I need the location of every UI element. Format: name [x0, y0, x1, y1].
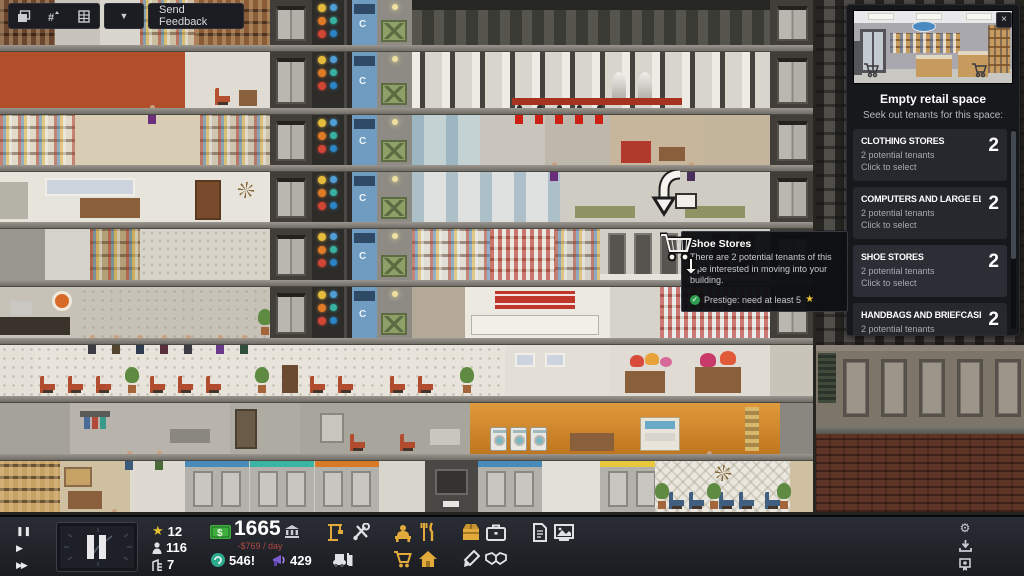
furniture-sprite [645, 421, 675, 429]
pipe [344, 172, 347, 222]
dumpster [381, 197, 407, 219]
furniture-sprite [630, 355, 644, 367]
room-bookstore[interactable] [200, 115, 270, 165]
utility-indicator-light [318, 82, 326, 90]
chair-sprite [669, 492, 684, 509]
corridor[interactable] [140, 229, 270, 280]
furniture-sprite [392, 176, 398, 182]
plant-sprite [777, 483, 791, 509]
furniture-sprite [645, 353, 659, 365]
furniture-sprite [815, 345, 1024, 351]
room-minimart[interactable] [490, 229, 555, 280]
utility-indicator-light [330, 145, 337, 152]
tenant-count: 2 [988, 251, 999, 273]
tenant-type-name: COMPUTERS AND LARGE ELECTRONICS [861, 194, 981, 204]
washing-machine [530, 427, 547, 451]
cash-icon: $ [210, 525, 231, 539]
tenant-detail: 2 potential tenantsClick to select [861, 208, 999, 231]
furniture-sprite [695, 367, 741, 393]
furniture-sprite [570, 433, 614, 451]
utility-indicator-light [318, 259, 326, 267]
utility-indicator-light [330, 30, 337, 37]
furniture-sprite [392, 56, 398, 62]
furniture-sprite [659, 147, 685, 161]
tenant-detail: 2 potential tenantsClick to select [861, 266, 999, 289]
preview-art [854, 41, 862, 75]
furniture-sprite [443, 501, 459, 507]
room[interactable] [542, 461, 600, 512]
furniture-sprite [100, 417, 106, 429]
pause-indicator [99, 535, 106, 559]
furniture-sprite [660, 357, 672, 367]
furniture-sprite [545, 353, 565, 367]
furniture-sprite [392, 4, 398, 10]
furniture-sprite [282, 365, 298, 393]
tenant-selection-panel: × Empty retail space Seek out tenants fo… [846, 4, 1020, 336]
plant-sprite [707, 483, 721, 509]
sprite-layer [615, 127, 705, 165]
furniture-sprite [239, 90, 257, 106]
tenant-type-name: HANDBAGS AND BRIEFCASES [861, 310, 981, 320]
room-storage[interactable] [90, 229, 140, 280]
furniture-sprite [745, 407, 759, 451]
utility-indicator-light [330, 246, 337, 253]
plant-sprite [655, 483, 669, 509]
furniture-sprite [815, 426, 1024, 434]
utility-indicator-light [318, 56, 326, 64]
furniture-sprite [0, 182, 28, 219]
furniture-sprite [354, 176, 375, 186]
svg-text:#: # [48, 12, 54, 23]
pause-indicator [87, 535, 94, 559]
furniture-sprite [486, 471, 506, 507]
furniture-sprite [221, 471, 241, 507]
fast-forward-button[interactable]: ▶▶ [16, 558, 38, 572]
cart-silhouette [862, 61, 880, 79]
floors-value: 7 [167, 557, 174, 572]
plant-sprite [255, 367, 269, 393]
panel-subtitle: Seek out tenants for this space: [853, 110, 1013, 121]
toolbar-dropdown-button[interactable]: ▼ [104, 3, 144, 29]
furniture-sprite [286, 471, 306, 507]
chair-sprite [739, 492, 754, 509]
utility-indicator-light [330, 189, 337, 196]
furniture-sprite [995, 359, 1021, 417]
furniture-sprite [235, 409, 257, 449]
goods-menu-icon[interactable] [459, 521, 483, 543]
population-value: 116 [166, 540, 187, 555]
preview-art [916, 55, 952, 77]
buzz-value: 429 [290, 553, 312, 568]
game-screen: CCCCCC # [0, 0, 1024, 576]
utility-indicator-light [318, 119, 326, 127]
chair-sprite [338, 376, 353, 393]
utility-indicator-light [318, 246, 326, 254]
deals-menu-icon[interactable] [484, 548, 508, 570]
plant-sprite [125, 367, 139, 393]
florist-decor [505, 345, 770, 396]
windows-overlay-icon[interactable] [17, 10, 31, 23]
furniture-sprite [250, 461, 314, 467]
elevator-door[interactable] [276, 293, 306, 334]
furniture-sprite [52, 291, 72, 311]
furniture-sprite [919, 359, 945, 417]
utility-indicator-light [330, 69, 337, 76]
pipe [344, 287, 347, 338]
elevator-door[interactable] [276, 58, 306, 104]
clock-face [60, 526, 134, 568]
utility-machine[interactable] [250, 461, 314, 512]
preview-art [966, 13, 992, 20]
utility-indicator-light [318, 291, 326, 299]
retail-space-preview-image [853, 10, 1013, 84]
building-overview-icon[interactable] [77, 10, 91, 23]
cart-silhouette [970, 61, 988, 79]
furniture-sprite [354, 233, 375, 243]
tenant-count: 2 [988, 135, 999, 157]
furniture-sprite [478, 461, 542, 467]
furniture-sprite [193, 471, 213, 507]
dumpster [381, 140, 407, 162]
utility-indicator-light [318, 30, 326, 38]
furniture-sprite [315, 461, 379, 467]
population-stat: 116 [152, 540, 187, 555]
furniture-sprite [638, 72, 652, 98]
furniture-sprite [80, 198, 140, 218]
chair-sprite [40, 376, 55, 393]
room-lab[interactable] [412, 172, 560, 222]
furniture-sprite [843, 359, 869, 417]
pipe [344, 0, 347, 45]
furniture-sprite [435, 469, 468, 495]
furniture-sprite [612, 72, 626, 98]
tenant-detail: 2 potential tenantsClick to select [861, 150, 999, 173]
sprite-layer [140, 70, 170, 108]
utility-indicator-light [330, 304, 337, 311]
furniture-sprite [621, 141, 651, 163]
furniture-sprite [881, 359, 907, 417]
room-lockers[interactable] [0, 403, 70, 454]
menu-sign [495, 291, 575, 309]
decorate-menu-icon[interactable] [459, 548, 483, 570]
utility-indicator-light [330, 202, 337, 209]
svg-text:$: $ [217, 528, 223, 539]
shopping-cart-cursor-icon [656, 228, 700, 281]
furniture-sprite [392, 291, 398, 297]
save-icon[interactable] [956, 539, 974, 553]
scrollbar-thumb[interactable] [1011, 131, 1016, 259]
furniture-sprite [351, 471, 371, 507]
chevron-down-icon: ▼ [120, 11, 129, 21]
pipe [344, 52, 347, 108]
lounge-decor [0, 345, 505, 396]
utility-indicator-light [318, 189, 326, 197]
tenant-count: 2 [988, 193, 999, 215]
furniture-sprite [636, 471, 656, 507]
conduit-label: C [359, 251, 366, 262]
shoe-stores-tooltip: Shoe Stores There are 2 potential tenant… [681, 231, 848, 312]
utility-indicator-light [330, 291, 337, 298]
utility-indicator-light [330, 132, 337, 139]
furniture-sprite [392, 233, 398, 239]
conduit-label: C [359, 136, 366, 147]
chair-sprite [390, 376, 405, 393]
chair-sprite [400, 434, 415, 451]
sprite-layer [540, 127, 580, 165]
dumpster [381, 83, 407, 105]
room[interactable] [412, 287, 465, 338]
food-service-menu-icon[interactable] [416, 521, 440, 543]
furniture-sprite [170, 429, 210, 443]
room-aquatics[interactable] [412, 115, 480, 165]
apartments-menu-icon[interactable] [416, 548, 440, 570]
utility-indicator-light [318, 317, 326, 325]
studio-decor [0, 172, 270, 222]
utility-indicator-light [330, 82, 337, 89]
floor-slab [0, 338, 815, 345]
star-icon: ★ [805, 294, 814, 305]
furniture-sprite [957, 359, 983, 417]
game-clock[interactable] [56, 522, 138, 572]
utility-indicator-light [318, 233, 326, 241]
washing-machine [490, 427, 507, 451]
buzz-icon [272, 553, 287, 567]
furniture-sprite [64, 467, 92, 487]
elevator-door[interactable] [777, 121, 808, 161]
floor-slab [0, 454, 815, 461]
check-icon: ✓ [690, 295, 700, 305]
furniture-sprite [323, 471, 343, 507]
tenant-count: 2 [988, 309, 999, 331]
tooltip-title: Shoe Stores [690, 238, 839, 250]
room[interactable] [610, 287, 660, 338]
neighbor-building-brick [815, 432, 1024, 512]
utility-indicator-light [318, 17, 326, 25]
preview-art [868, 13, 894, 20]
mechanical-floor [412, 0, 824, 45]
pipe [344, 115, 347, 165]
chair-sprite [719, 492, 734, 509]
furniture-sprite [185, 461, 249, 467]
furniture-sprite [0, 317, 70, 335]
furniture-sprite [720, 351, 736, 365]
influence-icon [211, 553, 225, 567]
person-icon [152, 542, 162, 554]
construction-menu-icon[interactable] [324, 521, 348, 543]
room-shop[interactable] [705, 115, 770, 165]
furniture-sprite [608, 233, 626, 276]
furniture-sprite [392, 119, 398, 125]
furniture-sprite [354, 4, 375, 14]
utility-machine[interactable] [478, 461, 542, 512]
room-lockers[interactable] [0, 229, 45, 280]
floor-slab [0, 396, 815, 403]
cash-value: 1665 [234, 517, 281, 541]
furniture-sprite [514, 471, 534, 507]
tenant-list-item[interactable]: CLOTHING STORES 2 2 potential tenantsCli… [853, 129, 1007, 181]
chair-sprite [215, 88, 230, 105]
utility-indicator-light [318, 69, 326, 77]
prestige-stat: ★ 12 [152, 523, 182, 539]
furniture-sprite [92, 417, 98, 429]
utility-indicator-light [318, 304, 326, 312]
preview-art [890, 33, 960, 53]
event-hall[interactable] [412, 52, 770, 108]
room[interactable] [790, 461, 815, 512]
furniture-sprite [354, 56, 375, 66]
furniture-sprite [625, 371, 665, 393]
food-counter-decor [465, 287, 610, 338]
chair-sprite [150, 376, 165, 393]
tenant-list-item[interactable]: COMPUTERS AND LARGE ELECTRONICS 2 2 pote… [853, 187, 1007, 239]
floor-slab [0, 108, 815, 115]
utility-indicator-light [318, 4, 326, 12]
status-bar: ❚❚ ▶ ▶▶ ★ 12 [0, 515, 1024, 576]
tooltip-requirement: Prestige: need at least 5 [704, 295, 801, 305]
room-shop[interactable] [0, 115, 75, 165]
utility-indicator-light [330, 259, 337, 266]
business-menu-icon[interactable] [484, 521, 508, 543]
utility-indicator-light [318, 145, 326, 153]
achievements-icon[interactable] [956, 557, 974, 571]
neighbor-building-windows [815, 345, 1024, 432]
tenant-list-item[interactable]: SHOE STORES 2 2 potential tenantsClick t… [853, 245, 1007, 297]
preview-art [912, 21, 936, 32]
furniture-sprite [258, 471, 278, 507]
furniture-sprite [512, 98, 682, 105]
room-bakery[interactable] [75, 115, 200, 165]
pause-button[interactable]: ❚❚ [16, 524, 38, 538]
reports-icon[interactable]: # [47, 10, 61, 23]
bank-icon[interactable] [284, 524, 300, 538]
chair-sprite [206, 376, 221, 393]
elevator-door[interactable] [276, 178, 306, 218]
dumpster [381, 20, 407, 42]
utility-indicator-light [330, 317, 337, 324]
furniture-sprite [645, 433, 675, 441]
cafe-crowd [80, 287, 270, 338]
conduit-label: C [359, 309, 366, 320]
utility-indicator-light [330, 17, 337, 24]
furniture-sprite [238, 182, 254, 198]
conduit-label: C [359, 193, 366, 204]
tenant-type-name: SHOE STORES [861, 252, 981, 262]
utility-machine[interactable] [185, 461, 249, 512]
contracts-menu-icon[interactable] [528, 521, 552, 543]
bulldoze-menu-icon[interactable] [330, 548, 354, 570]
conduit-label: C [359, 76, 366, 87]
elevator-door[interactable] [276, 235, 306, 276]
lobby[interactable] [655, 461, 790, 512]
sprite-layer [205, 70, 265, 108]
chair-sprite [178, 376, 193, 393]
phone-switch-unit[interactable] [425, 461, 478, 512]
laundromat-decor [470, 403, 780, 454]
washing-machine [510, 427, 527, 451]
furniture-sprite [471, 315, 599, 335]
media-menu-icon[interactable] [552, 521, 576, 543]
furniture-sprite [515, 353, 535, 367]
chair-sprite [418, 376, 433, 393]
furniture-sprite [608, 471, 628, 507]
espresso-decor [0, 287, 80, 338]
furniture-sprite [700, 353, 716, 367]
conduit-label: C [359, 19, 366, 30]
elevator-door[interactable] [276, 6, 306, 41]
room[interactable] [378, 461, 425, 512]
tenant-list: CLOTHING STORES 2 2 potential tenantsCli… [853, 129, 1013, 336]
utility-indicator-light [330, 233, 337, 240]
elevator-door[interactable] [777, 178, 808, 218]
tenant-list-item[interactable]: HANDBAGS AND BRIEFCASES 2 2 potential te… [853, 303, 1007, 336]
furniture-sprite [818, 353, 836, 403]
tenant-type-name: CLOTHING STORES [861, 136, 981, 146]
elevator-door[interactable] [276, 121, 306, 161]
chair-sprite [689, 492, 704, 509]
close-icon[interactable]: × [996, 12, 1012, 28]
elevator-door[interactable] [777, 58, 808, 104]
offices-menu-icon[interactable] [391, 521, 415, 543]
workshop-decor [70, 403, 470, 454]
chair-sprite [310, 376, 325, 393]
chair-sprite [350, 434, 365, 451]
panel-title: Empty retail space [853, 92, 1013, 106]
furniture-sprite [45, 178, 135, 196]
furniture-sprite [195, 180, 221, 220]
room[interactable] [45, 229, 90, 280]
room[interactable] [780, 403, 815, 454]
dumpster [381, 313, 407, 335]
furniture-sprite [430, 429, 460, 445]
tenant-detail: 2 potential tenantsClick to select [861, 324, 999, 336]
settings-gear-icon[interactable]: ⚙ [956, 521, 974, 535]
chair-sprite [96, 376, 111, 393]
room[interactable] [770, 345, 815, 396]
furniture-sprite [715, 465, 731, 481]
room-warehouse[interactable] [0, 461, 60, 512]
pipe [344, 229, 347, 280]
room-pharmacy[interactable] [412, 229, 490, 280]
tooltip-body: There are 2 potential tenants of this ty… [690, 252, 839, 287]
retail-menu-icon[interactable] [391, 548, 415, 570]
dock-decor [60, 461, 130, 512]
utility-indicator-light [318, 132, 326, 140]
utility-indicator-light [318, 202, 326, 210]
utility-indicator-light [330, 119, 337, 126]
utility-indicator-light [318, 176, 326, 184]
prestige-star-icon: ★ [152, 523, 164, 539]
utility-machine[interactable] [315, 461, 379, 512]
furniture-sprite [84, 417, 90, 429]
furniture-sprite [320, 413, 344, 443]
place-tenant-arrow-icon [650, 170, 702, 223]
room-shop[interactable] [555, 229, 600, 280]
furniture-sprite [354, 119, 375, 129]
chair-sprite [68, 376, 83, 393]
furniture-sprite [10, 301, 32, 315]
utilities-menu-icon[interactable] [349, 521, 373, 543]
panel-scrollbar[interactable] [1011, 129, 1016, 329]
prestige-value: 12 [168, 524, 182, 539]
play-button[interactable]: ▶ [16, 541, 38, 555]
elevator-door[interactable] [777, 6, 808, 41]
preview-art [988, 25, 1010, 73]
influence-value: 546! [229, 553, 255, 568]
furniture-sprite [354, 291, 375, 301]
daily-balance: -$769 / day [212, 541, 308, 551]
send-feedback-button[interactable]: Send Feedback [148, 3, 244, 29]
floor-slab [0, 45, 815, 52]
